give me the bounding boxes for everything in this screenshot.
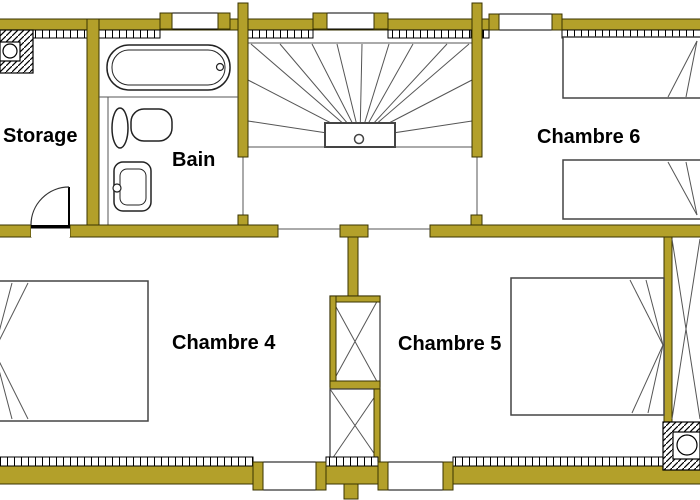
bed-chambre6-bottom — [563, 160, 700, 219]
center-dividing-wall — [348, 237, 358, 296]
duct-shaft-upper — [330, 296, 380, 389]
room-label-storage: Storage — [3, 125, 77, 148]
room-label-chambre5: Chambre 5 — [398, 333, 501, 356]
floor-plan: Storage Bain Chambre 6 Chambre 4 Chambre… — [0, 0, 700, 500]
duct-shaft-lower — [330, 389, 380, 462]
bed-chambre5 — [511, 278, 664, 415]
window-chambre6 — [489, 14, 562, 30]
stair-landing — [325, 123, 395, 147]
roof-slope-lines — [672, 239, 700, 419]
sink-icon — [113, 162, 151, 211]
winder-staircase — [243, 43, 477, 215]
window-chambre5 — [378, 462, 453, 490]
chambre5-right-wall — [664, 237, 672, 423]
window-chambre4 — [253, 462, 326, 490]
top-exterior-wall — [0, 13, 700, 38]
storage-bain-wall — [87, 19, 99, 237]
door-swing-icon — [31, 187, 69, 225]
stair-left-wall — [238, 3, 248, 157]
bathtub-icon — [107, 45, 230, 90]
window-stairs — [313, 13, 388, 29]
exterior-wall-stub — [344, 484, 358, 499]
bed-chambre4 — [0, 281, 148, 421]
stair-right-wall — [472, 3, 482, 157]
room-label-chambre6: Chambre 6 — [537, 126, 640, 149]
chimney-bottom-right — [663, 422, 700, 470]
window-bath — [160, 13, 230, 29]
bottom-exterior-wall — [0, 457, 700, 499]
chimney-top-left — [0, 30, 33, 73]
room-label-bain: Bain — [172, 149, 215, 172]
floor-plan-drawing — [0, 0, 700, 500]
toilet-icon — [112, 108, 172, 148]
bed-chambre6-top — [563, 37, 700, 98]
room-label-chambre4: Chambre 4 — [172, 332, 275, 355]
